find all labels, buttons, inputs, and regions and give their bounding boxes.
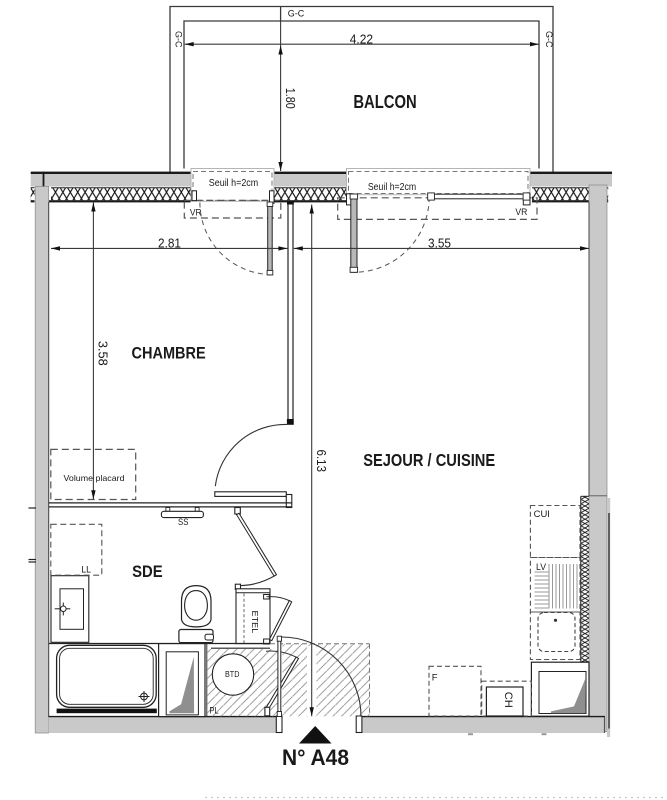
svg-text:Volume placard: Volume placard bbox=[64, 473, 125, 483]
svg-text:PL: PL bbox=[209, 706, 218, 717]
svg-text:G-C: G-C bbox=[172, 31, 183, 48]
svg-text:3.55: 3.55 bbox=[428, 236, 451, 251]
svg-text:LL: LL bbox=[81, 565, 91, 576]
svg-text:BALCON: BALCON bbox=[353, 92, 416, 112]
svg-text:ETEL: ETEL bbox=[250, 611, 259, 634]
svg-text:CH: CH bbox=[502, 692, 514, 708]
svg-text:2.81: 2.81 bbox=[158, 236, 181, 251]
svg-text:G-C: G-C bbox=[288, 9, 305, 20]
svg-text:1.80: 1.80 bbox=[283, 88, 298, 109]
svg-text:SDE: SDE bbox=[132, 563, 163, 581]
svg-text:VR: VR bbox=[515, 207, 527, 218]
svg-text:LV: LV bbox=[536, 562, 547, 573]
svg-text:G-C: G-C bbox=[543, 31, 554, 48]
svg-text:VR: VR bbox=[190, 208, 202, 219]
svg-text:SS: SS bbox=[178, 517, 188, 528]
svg-text:SEJOUR / CUISINE: SEJOUR / CUISINE bbox=[363, 450, 495, 470]
svg-text:CHAMBRE: CHAMBRE bbox=[132, 344, 206, 363]
svg-text:BTD: BTD bbox=[225, 670, 240, 679]
svg-text:3.58: 3.58 bbox=[96, 341, 111, 366]
svg-text:4.22: 4.22 bbox=[350, 31, 373, 46]
svg-text:N° A48: N° A48 bbox=[282, 745, 349, 770]
svg-text:Seuil h=2cm: Seuil h=2cm bbox=[209, 178, 258, 189]
svg-text:Seuil h=2cm: Seuil h=2cm bbox=[368, 182, 416, 193]
svg-text:F: F bbox=[432, 673, 438, 684]
svg-text:6.13: 6.13 bbox=[314, 450, 329, 473]
svg-text:CUI: CUI bbox=[534, 509, 550, 520]
